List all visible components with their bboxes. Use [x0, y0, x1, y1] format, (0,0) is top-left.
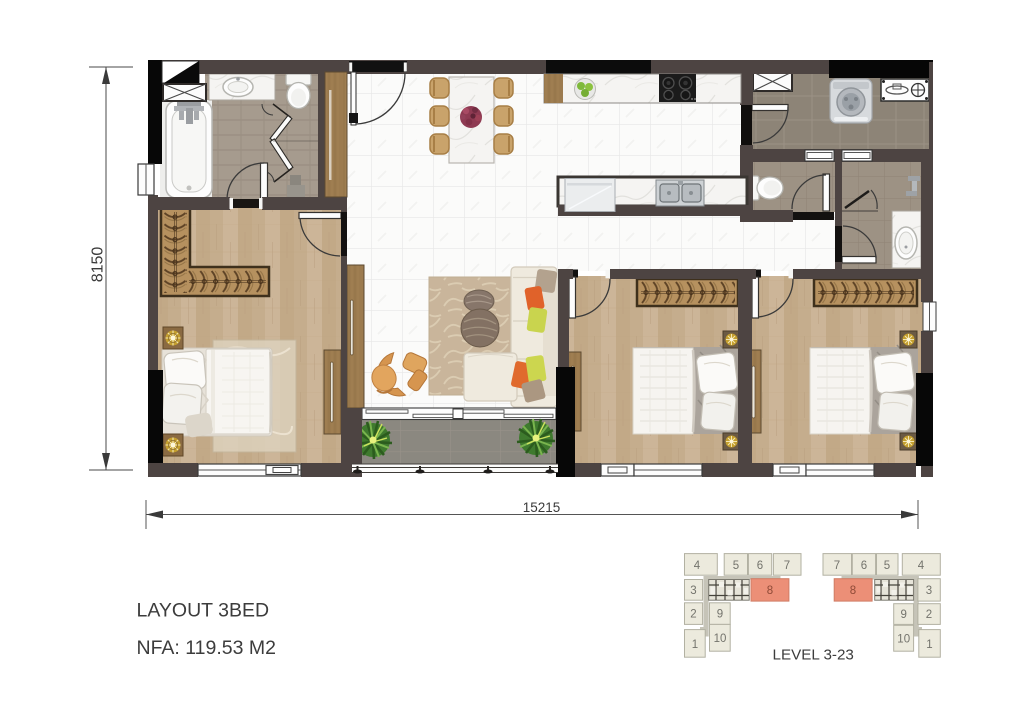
svg-text:2: 2 — [690, 609, 696, 621]
svg-text:3: 3 — [690, 585, 696, 597]
svg-text:3: 3 — [926, 585, 932, 597]
svg-text:8: 8 — [767, 585, 773, 597]
svg-text:7: 7 — [784, 560, 790, 572]
svg-text:5: 5 — [733, 560, 739, 572]
svg-text:4: 4 — [694, 560, 701, 572]
svg-text:10: 10 — [714, 633, 727, 645]
svg-text:8: 8 — [850, 585, 856, 597]
svg-text:8150: 8150 — [90, 247, 107, 283]
svg-text:NFA: 119.53 M2: NFA: 119.53 M2 — [137, 637, 276, 659]
svg-text:15215: 15215 — [523, 500, 561, 515]
svg-text:1: 1 — [692, 639, 698, 651]
svg-text:9: 9 — [717, 609, 723, 621]
svg-text:4: 4 — [918, 560, 925, 572]
svg-text:10: 10 — [897, 634, 910, 646]
svg-text:9: 9 — [900, 609, 906, 621]
svg-text:6: 6 — [757, 560, 763, 572]
svg-text:6: 6 — [861, 560, 867, 572]
svg-text:LAYOUT 3BED: LAYOUT 3BED — [137, 600, 270, 622]
svg-text:1: 1 — [926, 639, 932, 651]
svg-text:5: 5 — [884, 560, 890, 572]
svg-text:2: 2 — [926, 609, 932, 621]
svg-text:7: 7 — [834, 560, 840, 572]
svg-text:LEVEL 3-23: LEVEL 3-23 — [773, 647, 854, 664]
